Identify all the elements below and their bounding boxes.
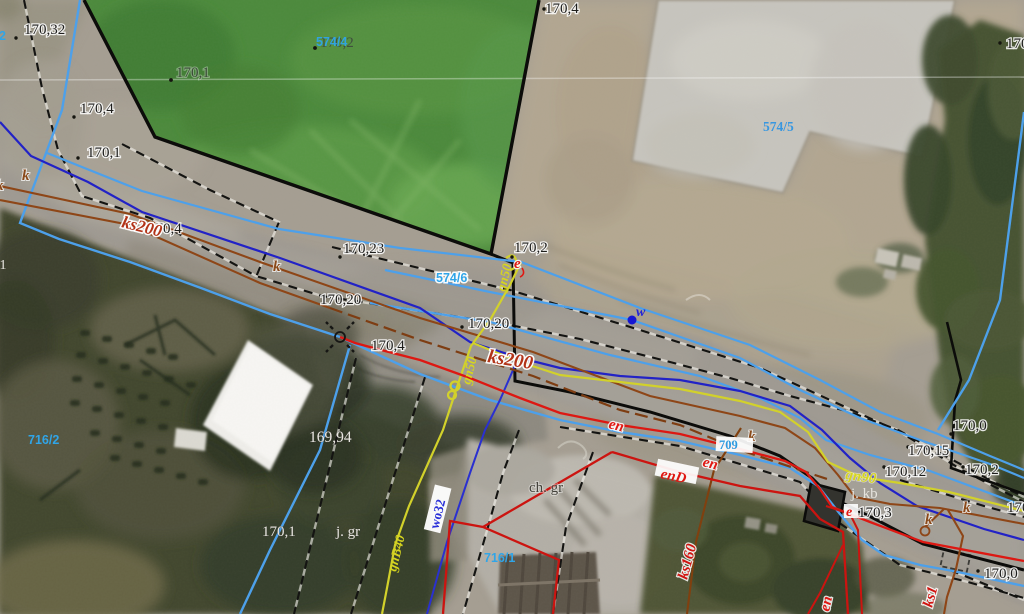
svg-text:k: k	[22, 168, 30, 184]
svg-text:170,3: 170,3	[858, 505, 892, 521]
svg-text:170,4: 170,4	[371, 338, 405, 354]
svg-text:170,0: 170,0	[953, 418, 987, 434]
svg-text:170,0: 170,0	[1006, 36, 1024, 52]
svg-text:2: 2	[0, 29, 6, 43]
svg-text:k: k	[273, 259, 281, 275]
svg-text:574/4: 574/4	[316, 35, 347, 49]
svg-text:170,12: 170,12	[885, 464, 926, 480]
svg-text:e: e	[846, 505, 852, 520]
svg-text:170,23: 170,23	[343, 241, 384, 257]
svg-text:170,1: 170,1	[1007, 500, 1024, 516]
svg-text:170,20: 170,20	[320, 292, 361, 308]
svg-text:574/6: 574/6	[436, 271, 467, 285]
svg-text:170,1: 170,1	[87, 145, 121, 161]
svg-text:e: e	[514, 256, 521, 272]
svg-text:170,0: 170,0	[984, 566, 1018, 582]
svg-text:169,94: 169,94	[309, 429, 352, 446]
svg-text:170,1: 170,1	[262, 524, 296, 540]
svg-text:170,2: 170,2	[514, 240, 548, 256]
svg-text:170,1: 170,1	[176, 65, 210, 81]
svg-text:w: w	[636, 305, 646, 320]
svg-text:716/1: 716/1	[484, 551, 515, 565]
svg-text:k: k	[925, 512, 933, 528]
svg-text:574/5: 574/5	[763, 119, 794, 134]
svg-text:170,20: 170,20	[468, 316, 509, 332]
svg-text:716/2: 716/2	[28, 433, 59, 447]
svg-text:j. gr: j. gr	[335, 524, 360, 540]
svg-text:170,15: 170,15	[908, 443, 949, 459]
svg-text:k: k	[963, 500, 971, 516]
svg-text:170,32: 170,32	[24, 22, 65, 38]
svg-text:170,4: 170,4	[80, 101, 114, 117]
svg-text:ch. gr: ch. gr	[529, 480, 563, 496]
svg-text:,1: ,1	[0, 258, 7, 273]
svg-text:j. kb: j. kb	[850, 486, 878, 502]
svg-text:170,4: 170,4	[545, 1, 579, 17]
svg-text:170,2: 170,2	[965, 462, 999, 478]
svg-text:709: 709	[719, 438, 738, 452]
svg-text:k: k	[0, 178, 4, 194]
